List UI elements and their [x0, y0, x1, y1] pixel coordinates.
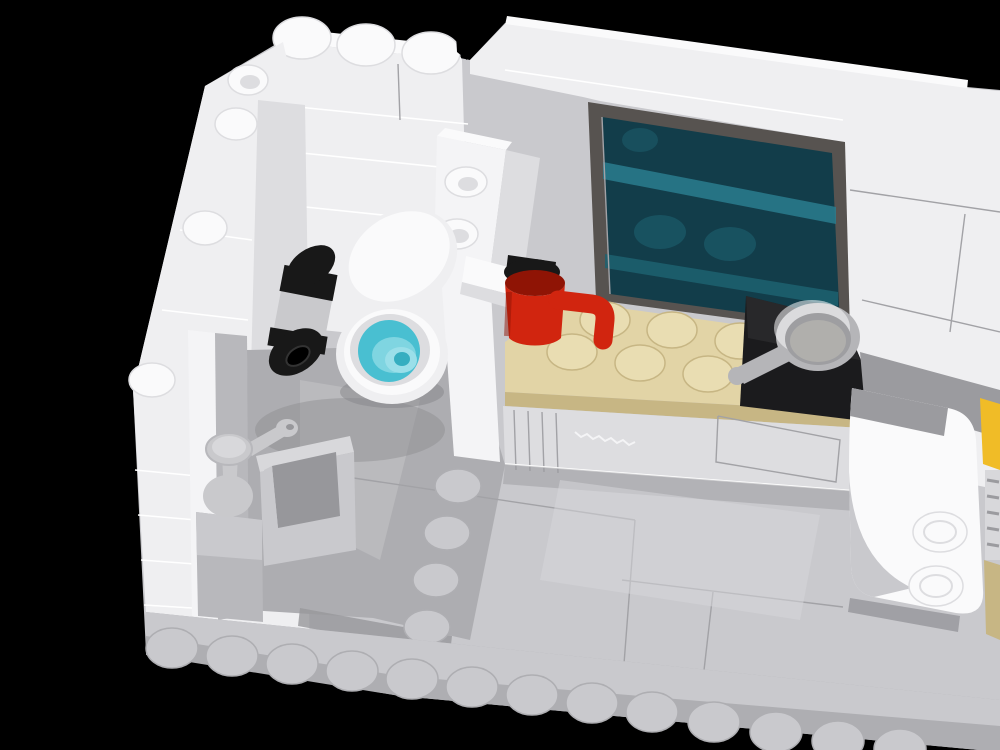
glass-stud-hint	[704, 227, 756, 261]
lego-scene	[0, 0, 1000, 750]
glass-stud-hint	[634, 215, 686, 249]
stud-hole	[458, 177, 478, 191]
arch-bracket	[848, 388, 983, 632]
drain-hole	[394, 352, 410, 366]
stud	[566, 683, 618, 723]
faucet-cap-top	[212, 436, 246, 458]
stud	[402, 32, 460, 74]
stud	[913, 512, 967, 552]
stud	[404, 610, 450, 644]
stud	[129, 363, 175, 397]
stud	[446, 667, 498, 707]
stud	[424, 516, 470, 550]
tan-sliver	[984, 560, 1000, 640]
stud	[688, 702, 740, 742]
stud	[647, 312, 697, 348]
pan-bottom	[790, 320, 846, 362]
pan-handle-end	[728, 367, 746, 385]
spout-hole	[286, 424, 294, 430]
stud	[750, 712, 802, 750]
stud	[215, 108, 257, 140]
mug-shade	[507, 292, 509, 336]
stud	[435, 469, 481, 503]
stud	[326, 651, 378, 691]
stud	[266, 644, 318, 684]
glass-stud-hint	[622, 128, 658, 152]
stud	[615, 345, 665, 381]
lego-render-stage	[0, 0, 1000, 750]
stud	[337, 24, 395, 66]
stud	[626, 692, 678, 732]
stud	[183, 211, 227, 245]
stud	[413, 563, 459, 597]
display-window	[588, 102, 850, 334]
yellow-ladder	[980, 398, 1000, 470]
stud-hole	[240, 75, 260, 89]
stud	[506, 675, 558, 715]
pedestal-top-band	[196, 512, 262, 560]
stud	[683, 356, 733, 392]
stud	[909, 566, 963, 606]
stud	[206, 636, 258, 676]
stud	[146, 628, 198, 668]
stud	[386, 659, 438, 699]
